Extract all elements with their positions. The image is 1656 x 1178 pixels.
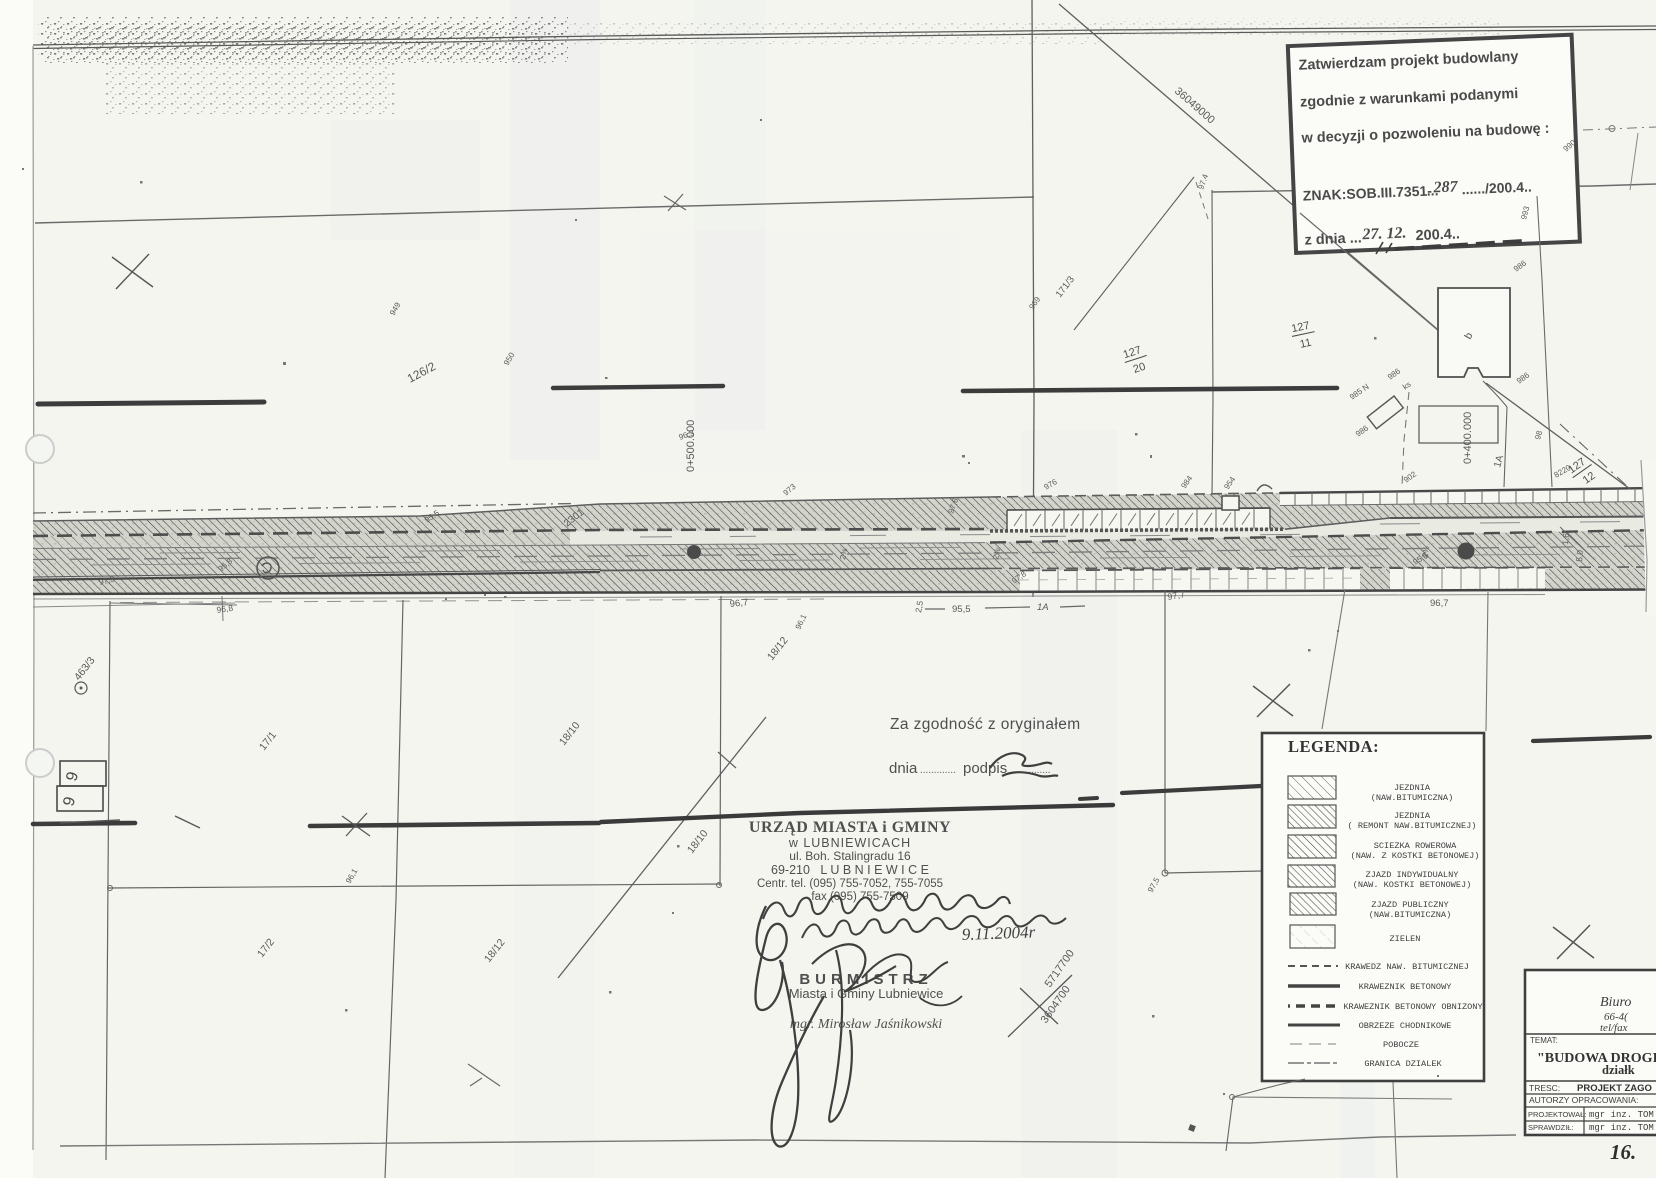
svg-text:"BUDOWA DROGI (: "BUDOWA DROGI ( [1537, 1051, 1656, 1066]
svg-text:Biuro: Biuro [1600, 995, 1631, 1010]
svg-text:OBRZEZE CHODNIKOWE: OBRZEZE CHODNIKOWE [1359, 1021, 1452, 1031]
svg-text:PROJEKTOWAŁ:: PROJEKTOWAŁ: [1528, 1110, 1586, 1119]
svg-text:SCIEZKA ROWEROWA: SCIEZKA ROWEROWA [1374, 841, 1457, 851]
svg-text:mgr inz. TOM: mgr inz. TOM [1589, 1123, 1654, 1133]
svg-text:JEZDNIA: JEZDNIA [1394, 811, 1431, 821]
svg-text:JEZDNIA: JEZDNIA [1394, 783, 1431, 793]
svg-text:ZJAZD INDYWIDUALNY: ZJAZD INDYWIDUALNY [1366, 870, 1459, 880]
svg-text:...: ... [1426, 182, 1438, 198]
svg-text:95,5: 95,5 [952, 604, 971, 615]
svg-text:....../200.4..: ....../200.4.. [1461, 178, 1532, 197]
svg-text:dnia: dnia [889, 760, 918, 777]
svg-text:ul. Boh. Stalingradu 16: ul. Boh. Stalingradu 16 [789, 849, 911, 863]
svg-text:11: 11 [1299, 337, 1313, 351]
svg-text:AUTORZY OPRACOWANIA:: AUTORZY OPRACOWANIA: [1529, 1095, 1638, 1105]
svg-text:GRANICA DZIALEK: GRANICA DZIALEK [1364, 1059, 1442, 1069]
svg-text:5,0: 5,0 [1574, 549, 1585, 562]
svg-text:16.: 16. [1610, 1140, 1636, 1164]
svg-text:96,7: 96,7 [729, 597, 749, 610]
svg-text:1,6: 1,6 [1560, 532, 1571, 545]
svg-text:mgr. Mirosław Jaśnikowski: mgr. Mirosław Jaśnikowski [790, 1017, 942, 1032]
svg-text:LEGENDA:: LEGENDA: [1288, 737, 1379, 756]
svg-text:ZJAZD PUBLICZNY: ZJAZD PUBLICZNY [1371, 900, 1448, 910]
svg-text:96,7: 96,7 [1430, 598, 1449, 609]
svg-text:( REMONT NAW.BITUMICZNEJ): ( REMONT NAW.BITUMICZNEJ) [1348, 821, 1477, 831]
svg-text:SPRAWDZIŁ:: SPRAWDZIŁ: [1528, 1123, 1574, 1132]
svg-text:9.11.2004r: 9.11.2004r [961, 922, 1035, 944]
svg-text:mgr inz. TOM: mgr inz. TOM [1589, 1110, 1654, 1120]
svg-text:200.4..: 200.4.. [1415, 226, 1460, 244]
svg-text:z dnia ...: z dnia ... [1304, 230, 1362, 248]
svg-text:działk: działk [1602, 1063, 1635, 1077]
svg-text:tel/fax: tel/fax [1600, 1022, 1628, 1034]
svg-text:(NAW. KOSTKI BETONOWEJ): (NAW. KOSTKI BETONOWEJ) [1353, 880, 1472, 890]
svg-text:KRAWEZNIK BETONOWY: KRAWEZNIK BETONOWY [1359, 982, 1452, 992]
svg-text:2,5: 2,5 [913, 600, 925, 614]
svg-text:POBOCZE: POBOCZE [1383, 1040, 1419, 1050]
svg-text:PROJEKT ZAGO: PROJEKT ZAGO [1577, 1083, 1652, 1094]
svg-text:(NAW.BITUMICZNA): (NAW.BITUMICZNA) [1369, 910, 1452, 920]
svg-text:69-210 L U B N I E W I C E: 69-210 L U B N I E W I C E [771, 863, 929, 877]
svg-text:TEMAT:: TEMAT: [1530, 1036, 1558, 1045]
svg-text:27. 12.: 27. 12. [1361, 225, 1407, 244]
svg-text:w LUBNIEWICACH: w LUBNIEWICACH [788, 836, 911, 850]
svg-text:.............: ............. [920, 764, 956, 776]
svg-text:0+400.000: 0+400.000 [1462, 412, 1474, 464]
svg-text:Centr. tel. (095) 755-7052, 75: Centr. tel. (095) 755-7052, 755-7055 [757, 878, 943, 890]
svg-text:(NAW. Z KOSTKI BETONOWEJ): (NAW. Z KOSTKI BETONOWEJ) [1351, 851, 1480, 861]
svg-text:podpis: podpis [963, 760, 1007, 777]
svg-text:(NAW.BITUMICZNA): (NAW.BITUMICZNA) [1371, 793, 1454, 803]
svg-text:Za zgodność z oryginałem: Za zgodność z oryginałem [890, 716, 1081, 733]
svg-text:KRAWEZNIK BETONOWY OBNIZONY: KRAWEZNIK BETONOWY OBNIZONY [1343, 1002, 1482, 1012]
svg-text:1A: 1A [1037, 602, 1049, 613]
svg-text:URZĄD MIASTA i GMINY: URZĄD MIASTA i GMINY [749, 819, 951, 836]
svg-text:KRAWEDZ NAW. BITUMICZNEJ: KRAWEDZ NAW. BITUMICZNEJ [1345, 962, 1469, 972]
svg-text:ZIELEN: ZIELEN [1390, 934, 1421, 944]
svg-text:TRESC:: TRESC: [1529, 1083, 1560, 1093]
